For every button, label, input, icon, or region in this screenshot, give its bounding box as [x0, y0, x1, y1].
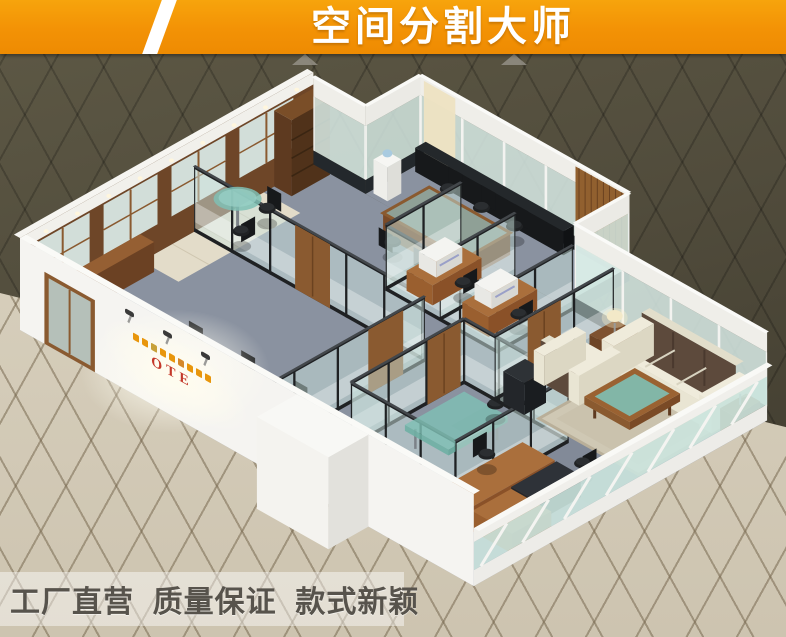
- water-dispenser: [374, 149, 402, 201]
- tagline-strip: 工厂直营 质量保证 款式新颖: [0, 572, 404, 626]
- promo-image: OTE 空间分割大师 工厂直营 质量保证 款式新颖: [0, 0, 786, 637]
- title-banner: 空间分割大师: [0, 0, 786, 54]
- tagline-text: 工厂直营 质量保证 款式新颖: [10, 577, 419, 621]
- banner-title: 空间分割大师: [100, 0, 786, 54]
